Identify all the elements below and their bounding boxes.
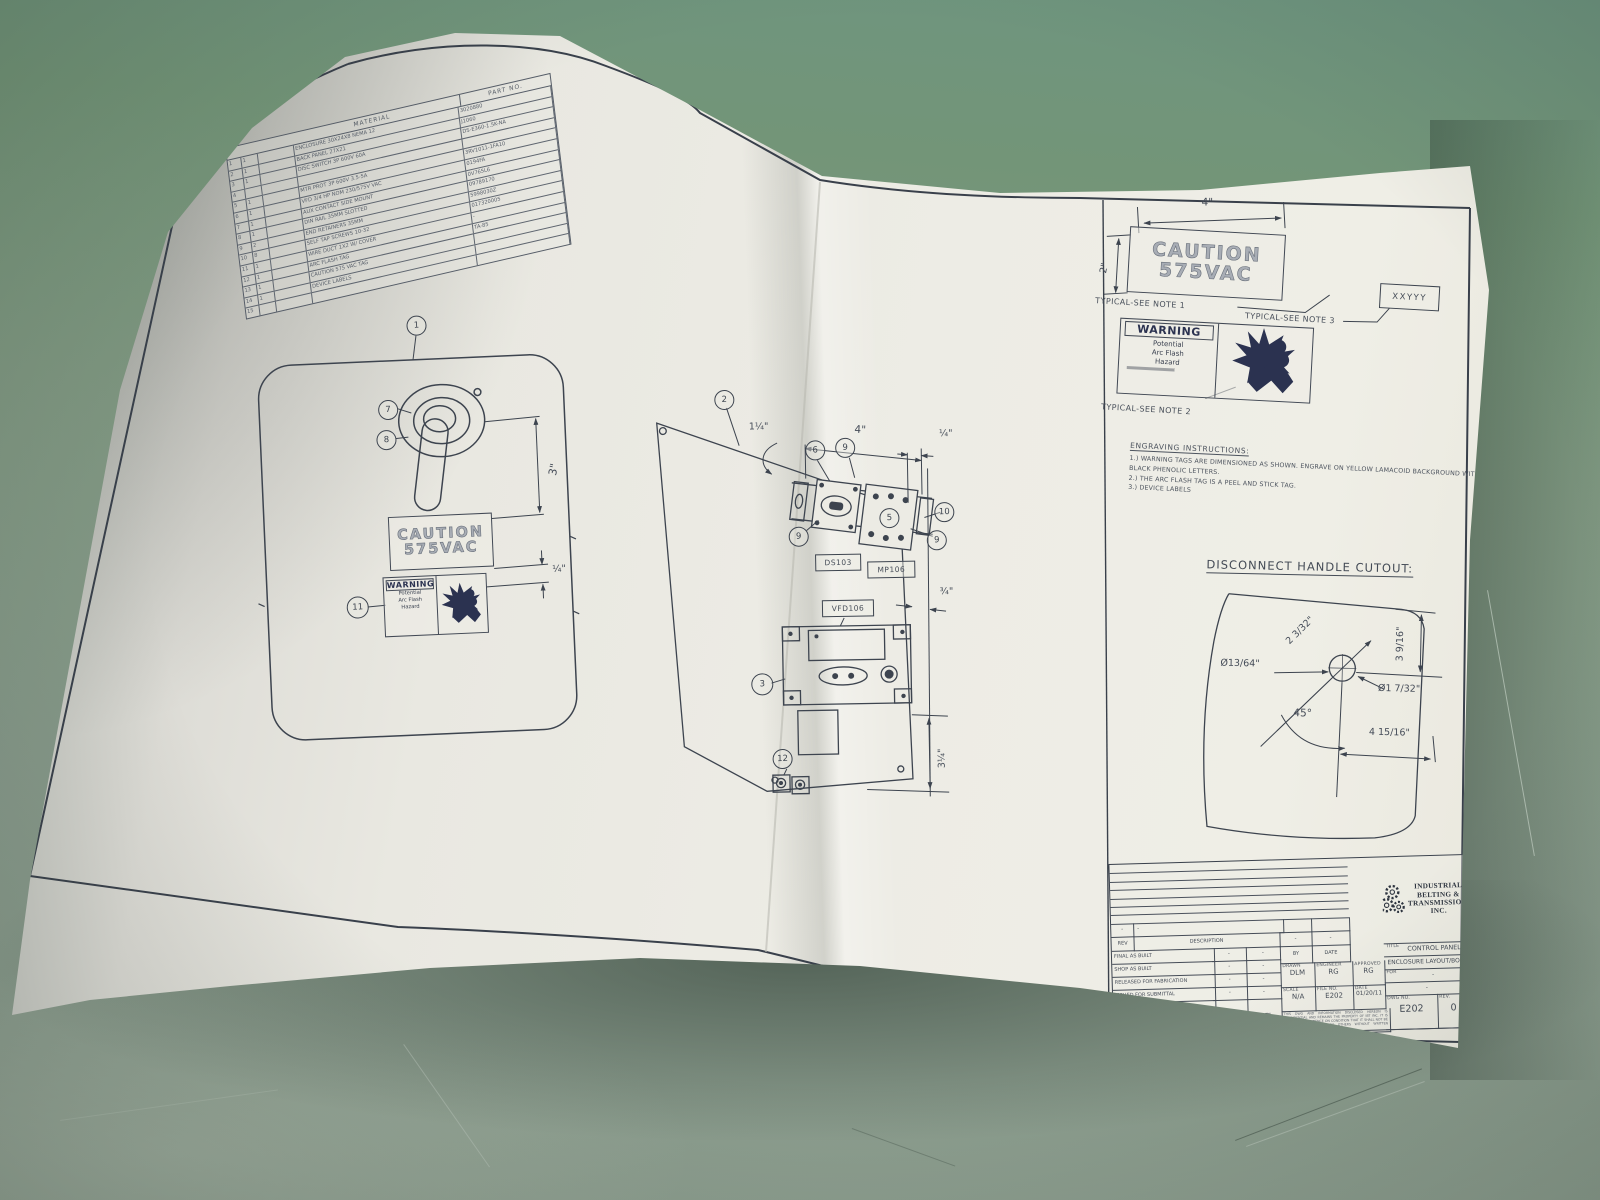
dim-quarter: ¼" — [552, 563, 566, 575]
detail-dim-2in: 2" — [1098, 262, 1111, 274]
device-label-vfd106: VFD106 — [822, 599, 874, 617]
cutout-detail: DISCONNECT HANDLE CUTOUT: — [1138, 538, 1485, 865]
warning-title: WARNING — [1124, 321, 1214, 341]
caution-label: CAUTION 575VAC — [388, 513, 494, 571]
warning-text-cell: WARNING Potential Arc Flash Hazard — [384, 576, 439, 636]
approved-cell: APPROVEDRG — [1352, 960, 1386, 986]
cutout-dim-right: 3 9/16" — [1394, 626, 1406, 661]
dim-1-4in: ¼" — [939, 428, 953, 439]
dim-4in: 4" — [854, 424, 866, 437]
by-header: BY — [1280, 945, 1313, 964]
dim-3-4in: ¾" — [940, 586, 954, 597]
cutout-dim-hole-main: Ø1 7/32" — [1378, 683, 1420, 695]
dim-3-1-4in: 3¼" — [936, 749, 947, 769]
cutout-dim-bottom: 4 15/16" — [1369, 727, 1410, 739]
scale-cell: SCALEN/A — [1281, 986, 1317, 1012]
cutout-dim-angle: 45° — [1293, 707, 1312, 719]
company-logo: INDUSTRIAL BELTING & TRANSMISSION, INC. — [1381, 855, 1468, 944]
date-cell: DATE01/20/11 — [1353, 984, 1387, 1010]
cutout-dim-hole-small: Ø13/64" — [1220, 658, 1259, 670]
company-name: INDUSTRIAL BELTING & TRANSMISSION, INC. — [1407, 881, 1468, 916]
dwg-no-cell: DWG NO. E202 — [1385, 994, 1439, 1030]
warning-label-detail: WARNING Potential Arc Flash Hazard — [1116, 318, 1314, 404]
caution-label-detail: CAUTION 575VAC — [1127, 226, 1286, 301]
file-no-cell: FILE NO.E202 — [1315, 985, 1355, 1011]
dim-3in: 3" — [546, 462, 561, 476]
device-label-mp106: MP106 — [867, 561, 915, 579]
device-label-ds103: DS103 — [815, 554, 861, 572]
arc-flash-icon — [1215, 324, 1313, 403]
dim-1-1-4in: 1¼" — [749, 421, 769, 432]
caution-line2: 575VAC — [404, 540, 479, 558]
drawn-cell: DRAWNDLM — [1280, 962, 1316, 988]
caution-line2: 575VAC — [1158, 261, 1253, 286]
engineer-cell: ENGINEERRG — [1314, 961, 1354, 987]
warning-label: WARNING Potential Arc Flash Hazard — [382, 573, 489, 637]
xxyyy-tag: XXYYY — [1379, 283, 1440, 311]
arc-flash-icon — [436, 574, 488, 634]
door-view: 1 7 8 11 3" ¼" CAUTION 575VAC WARNING Po… — [225, 302, 615, 778]
warning-line3: Hazard — [401, 603, 420, 611]
warning-line3: Hazard — [1155, 358, 1180, 368]
gears-icon — [1381, 884, 1406, 917]
panel-view: 2 6 9 9 5 10 9 3 12 DS103 MP106 VFD106 4… — [608, 375, 996, 832]
warning-text-cell: WARNING Potential Arc Flash Hazard — [1117, 319, 1218, 398]
cutout-title: DISCONNECT HANDLE CUTOUT: — [1206, 557, 1413, 577]
detail-dim-4in: 4" — [1201, 196, 1213, 208]
